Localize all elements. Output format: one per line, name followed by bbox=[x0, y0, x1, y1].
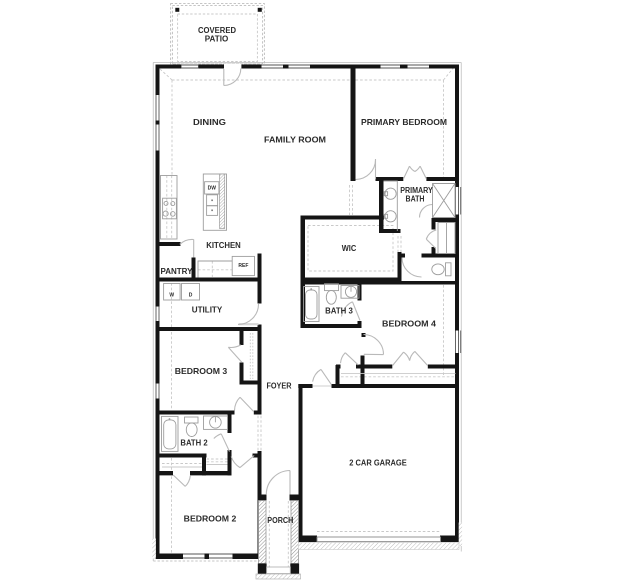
svg-text:WIC: WIC bbox=[342, 244, 357, 253]
svg-text:BEDROOM 4: BEDROOM 4 bbox=[382, 319, 436, 329]
svg-text:DW: DW bbox=[208, 186, 217, 192]
svg-text:2 CAR GARAGE: 2 CAR GARAGE bbox=[349, 457, 407, 467]
svg-text:D: D bbox=[189, 293, 193, 299]
svg-text:BATH: BATH bbox=[406, 195, 425, 204]
svg-text:PATIO: PATIO bbox=[205, 35, 229, 44]
svg-text:FAMILY ROOM: FAMILY ROOM bbox=[264, 135, 326, 145]
svg-text:PANTRY: PANTRY bbox=[161, 267, 194, 276]
svg-text:UTILITY: UTILITY bbox=[192, 304, 223, 314]
svg-text:REF: REF bbox=[238, 263, 248, 269]
svg-text:PORCH: PORCH bbox=[267, 516, 293, 525]
svg-text:PRIMARY BEDROOM: PRIMARY BEDROOM bbox=[361, 117, 447, 127]
svg-text:BEDROOM 3: BEDROOM 3 bbox=[175, 366, 228, 376]
svg-text:DINING: DINING bbox=[193, 117, 226, 127]
svg-text:BATH 2: BATH 2 bbox=[180, 438, 208, 447]
svg-text:BEDROOM 2: BEDROOM 2 bbox=[184, 514, 237, 524]
svg-text:FOYER: FOYER bbox=[266, 382, 291, 391]
svg-text:KITCHEN: KITCHEN bbox=[206, 240, 241, 250]
svg-text:BATH 3: BATH 3 bbox=[325, 307, 353, 316]
svg-text:W: W bbox=[169, 293, 174, 299]
